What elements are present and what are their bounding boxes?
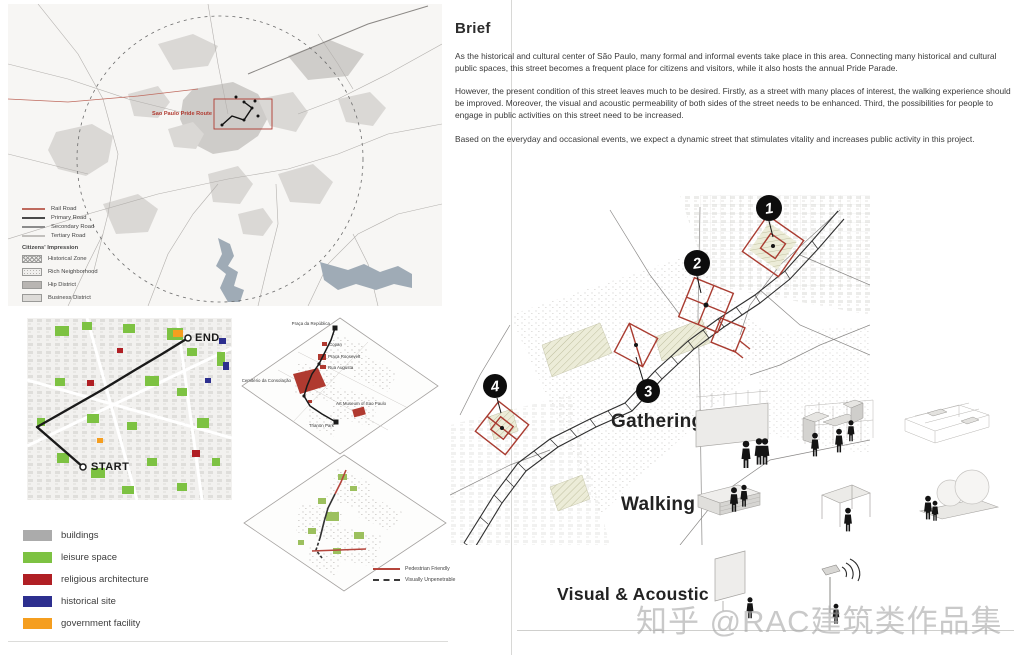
brief-paragraph-3: Based on the everyday and occasional eve…	[455, 134, 1015, 146]
rail-road-label: Rail Road	[51, 206, 76, 212]
historical-zone-swatch	[22, 255, 42, 263]
label-art-museum: Art Museum of Sao Paulo	[336, 401, 387, 406]
label-praca-republica: Praça da República	[292, 321, 331, 326]
brief-title: Brief	[455, 20, 1015, 37]
rail-road-sample	[22, 208, 45, 210]
government-facility-swatch	[23, 618, 52, 629]
stepped-platform-vignette	[698, 485, 760, 515]
business-district-swatch	[22, 294, 42, 302]
legend-primary-road: Primary Road	[22, 215, 86, 221]
legend-government-facility: government facility	[23, 618, 140, 629]
hip-district-label: Hip District	[48, 282, 76, 288]
end-label: END	[195, 332, 220, 344]
pride-route-label: Sao Paulo Pride Route	[152, 111, 212, 117]
impression-legend-title: Citizens' Impression	[22, 245, 78, 251]
label-trianon-park: Trianon Park	[309, 423, 335, 428]
buildings-swatch	[23, 530, 52, 541]
rich-neighborhood-swatch	[22, 268, 42, 276]
tertiary-road-label: Tertiary Road	[51, 233, 85, 239]
node-marker-2: 2	[684, 250, 710, 276]
canopy-vignette	[822, 485, 870, 531]
pedestrian-friendly-label: Pedestrian Friendly	[405, 566, 450, 572]
brief-paragraph-2: However, the present condition of this s…	[455, 86, 1015, 121]
label-rua-augusta: Rua Augusta	[328, 365, 354, 370]
start-marker	[80, 464, 86, 470]
label-copan: Copan	[329, 342, 342, 347]
legend-business-district: Business District	[22, 294, 91, 302]
node-marker-4: 4	[483, 374, 507, 398]
secondary-road-sample	[22, 226, 45, 228]
legend-secondary-road: Secondary Road	[22, 224, 94, 230]
religious-architecture-label: religious architecture	[61, 574, 149, 585]
watermark: 知乎 @RAC建筑类作品集	[636, 596, 1003, 641]
tertiary-road-sample	[22, 235, 45, 237]
legend-rail-road: Rail Road	[22, 206, 76, 212]
visually-unpenetrable-sample	[373, 579, 400, 581]
rich-neighborhood-label: Rich Neighborhood	[48, 269, 98, 275]
legend-hip-district: Hip District	[22, 281, 76, 289]
hip-district-swatch	[22, 281, 42, 289]
node-marker-1: 1	[756, 195, 782, 221]
historical-site-label: historical site	[61, 596, 116, 607]
business-district-label: Business District	[48, 295, 91, 301]
legend-historical-zone: Historical Zone	[22, 255, 87, 263]
legend-leisure-space: leisure space	[23, 552, 117, 563]
portfolio-page: Sao Paulo Pride Route Rail Road Primary …	[0, 0, 1024, 655]
spheres-vignette	[920, 470, 998, 521]
legend-buildings: buildings	[23, 530, 99, 541]
government-facility-label: government facility	[61, 618, 140, 629]
end-marker	[185, 335, 191, 341]
scaffold-desks-vignette	[803, 400, 873, 456]
legend-rich-neighborhood: Rich Neighborhood	[22, 268, 98, 276]
legend-pedestrian-friendly: Pedestrian Friendly	[373, 566, 450, 572]
historical-site-swatch	[23, 596, 52, 607]
walking-label: Walking	[621, 494, 695, 516]
scaffold-frame-vignette	[905, 403, 989, 443]
start-label: START	[91, 461, 129, 473]
leisure-space-swatch	[23, 552, 52, 563]
buildings-label: buildings	[61, 530, 99, 541]
sound-waves-icon	[842, 559, 860, 581]
node-marker-3: 3	[636, 379, 660, 403]
legend-religious-architecture: religious architecture	[23, 574, 149, 585]
legend-tertiary-road: Tertiary Road	[22, 233, 85, 239]
legend-visually-unpenetrable: Visually Unpenetrable	[373, 577, 455, 583]
religious-architecture-swatch	[23, 574, 52, 585]
brief-paragraph-1: As the historical and cultural center of…	[455, 51, 1015, 74]
label-cemiterio: Cemitério da Consolação	[242, 378, 292, 383]
label-praca-roosevelt: Praça Roosevelt	[328, 354, 361, 359]
historical-zone-label: Historical Zone	[48, 256, 87, 262]
pedestrian-friendly-sample	[373, 568, 400, 570]
billboard-screen-vignette	[696, 389, 769, 468]
primary-road-sample	[22, 217, 45, 219]
primary-road-label: Primary Road	[51, 215, 86, 221]
secondary-road-label: Secondary Road	[51, 224, 94, 230]
left-bottom-rule	[8, 641, 448, 642]
route-map	[27, 318, 232, 500]
landmarks-axon-diagram: Praça da República Copan Praça Roosevelt…	[238, 312, 443, 462]
brief-section: Brief As the historical and cultural cen…	[455, 20, 1015, 157]
leisure-space-label: leisure space	[61, 552, 117, 563]
visually-unpenetrable-label: Visually Unpenetrable	[405, 577, 455, 583]
legend-historical-site: historical site	[23, 596, 116, 607]
